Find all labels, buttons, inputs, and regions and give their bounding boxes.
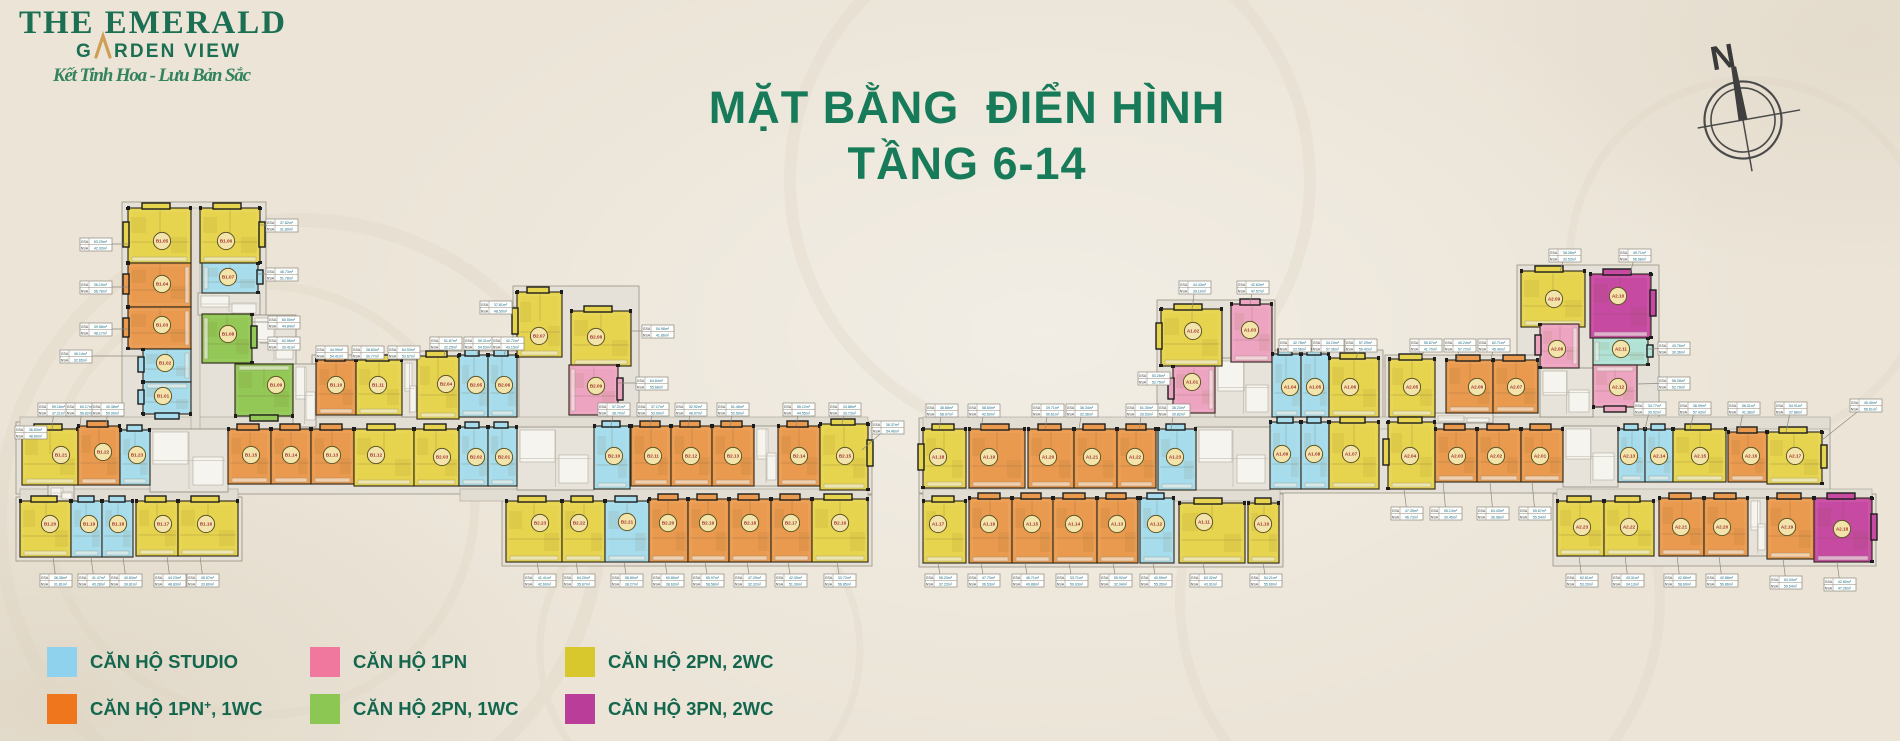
svg-text:NSA: NSA [81, 331, 89, 335]
svg-text:48.60m²: 48.60m² [29, 434, 43, 438]
svg-text:42.39m²: 42.39m² [789, 576, 803, 580]
svg-text:NSA: NSA [830, 411, 838, 415]
svg-text:NSA: NSA [1613, 582, 1621, 586]
svg-text:NSA: NSA [1825, 586, 1833, 590]
svg-text:A2.16: A2.16 [1745, 454, 1758, 459]
svg-text:37.82m²: 37.82m² [280, 221, 294, 225]
svg-text:GSA: GSA [637, 379, 645, 383]
svg-text:A2.04: A2.04 [1404, 454, 1417, 459]
svg-text:GSA: GSA [830, 405, 838, 409]
svg-text:55.35m²: 55.35m² [1154, 582, 1168, 586]
svg-text:A1.12: A1.12 [1150, 522, 1163, 527]
svg-text:GSA: GSA [1013, 576, 1021, 580]
svg-text:56.20m²: 56.20m² [939, 576, 953, 580]
svg-text:RDEN VIEW: RDEN VIEW [114, 41, 239, 62]
svg-text:THE EMERALD: THE EMERALD [19, 5, 285, 41]
svg-text:GSA: GSA [1776, 404, 1784, 408]
svg-text:B1.16: B1.16 [200, 522, 213, 527]
svg-text:37.17m²: 37.17m² [651, 405, 665, 409]
svg-text:B1.17: B1.17 [157, 522, 170, 527]
svg-text:GSA: GSA [1392, 509, 1400, 513]
svg-text:NSA: NSA [81, 289, 89, 293]
svg-text:50.42m²: 50.42m² [1359, 347, 1373, 351]
svg-text:55.12m²: 55.12m² [797, 405, 811, 409]
svg-text:61.46m²: 61.46m² [731, 405, 745, 409]
svg-text:44.84m²: 44.84m² [282, 324, 296, 328]
svg-text:B1.05: B1.05 [156, 239, 169, 244]
svg-text:A1.05: A1.05 [1309, 385, 1322, 390]
svg-text:GSA: GSA [1346, 341, 1354, 345]
svg-text:59.31m²: 59.31m² [478, 339, 492, 343]
svg-text:B1.08: B1.08 [222, 332, 235, 337]
svg-text:34.19m²: 34.19m² [1326, 341, 1340, 345]
svg-text:57.36m²: 57.36m² [1326, 347, 1340, 351]
svg-text:51.78m²: 51.78m² [280, 276, 294, 280]
svg-text:39.41m²: 39.41m² [282, 345, 296, 349]
svg-text:GSA: GSA [317, 348, 325, 352]
svg-text:41.86m²: 41.86m² [656, 333, 670, 337]
svg-text:59.93m²: 59.93m² [1070, 582, 1084, 586]
svg-text:GSA: GSA [1313, 341, 1321, 345]
svg-text:GSA: GSA [1033, 406, 1041, 410]
svg-text:44.23m²: 44.23m² [168, 576, 182, 580]
svg-text:A1.20: A1.20 [1042, 455, 1055, 460]
svg-text:GSA: GSA [643, 327, 651, 331]
svg-text:GSA: GSA [1238, 283, 1246, 287]
svg-text:A2.21: A2.21 [1675, 525, 1688, 530]
svg-text:42.63m²: 42.63m² [1251, 283, 1265, 287]
svg-text:B1.15: B1.15 [245, 453, 258, 458]
svg-text:47.26m²: 47.26m² [1838, 586, 1852, 590]
svg-text:NSA: NSA [493, 345, 501, 349]
svg-text:63.32m²: 63.32m² [1204, 576, 1218, 580]
svg-text:NSA: NSA [431, 345, 439, 349]
svg-text:43.88m²: 43.88m² [843, 405, 857, 409]
svg-text:NSA: NSA [67, 411, 75, 415]
svg-text:38.99m²: 38.99m² [1693, 404, 1707, 408]
svg-text:48.17m²: 48.17m² [94, 331, 108, 335]
svg-text:A2.10: A2.10 [1612, 294, 1625, 299]
svg-text:NSA: NSA [825, 582, 833, 586]
svg-text:NSA: NSA [1159, 412, 1167, 416]
svg-text:NSA: NSA [353, 354, 361, 358]
svg-text:31.89m²: 31.89m² [280, 227, 294, 231]
svg-text:54.53m²: 54.53m² [478, 345, 492, 349]
svg-text:GSA: GSA [525, 576, 533, 580]
svg-text:GSA: GSA [612, 576, 620, 580]
svg-text:B1.23: B1.23 [131, 453, 144, 458]
svg-text:NSA: NSA [1101, 582, 1109, 586]
svg-text:NSA: NSA [39, 411, 47, 415]
svg-text:A2.05: A2.05 [1406, 385, 1419, 390]
svg-text:53.29m²: 53.29m² [94, 240, 108, 244]
svg-text:57.72m²: 57.72m² [1458, 347, 1472, 351]
svg-text:34.77m²: 34.77m² [1648, 404, 1662, 408]
svg-text:NSA: NSA [969, 582, 977, 586]
svg-text:A2.15: A2.15 [1694, 454, 1707, 459]
svg-text:NSA: NSA [926, 582, 934, 586]
svg-text:62.71m²: 62.71m² [1492, 341, 1506, 345]
svg-text:NSA: NSA [1013, 582, 1021, 586]
svg-text:GSA: GSA [927, 406, 935, 410]
svg-text:55.68m²: 55.68m² [650, 385, 664, 389]
svg-text:34.13m²: 34.13m² [1626, 582, 1640, 586]
svg-text:NSA: NSA [873, 429, 881, 433]
svg-text:42.80m²: 42.80m² [1838, 580, 1852, 584]
svg-text:49.71m²: 49.71m² [1633, 251, 1647, 255]
svg-text:A2.13: A2.13 [1623, 454, 1636, 459]
svg-text:42.72m²: 42.72m² [506, 339, 520, 343]
svg-text:GSA: GSA [493, 339, 501, 343]
svg-text:NSA: NSA [1567, 582, 1575, 586]
svg-text:33.80m²: 33.80m² [201, 582, 215, 586]
svg-text:NSA: NSA [599, 411, 607, 415]
svg-text:A1.04: A1.04 [1284, 385, 1297, 390]
svg-text:NSA: NSA [1238, 289, 1246, 293]
svg-text:58.69m²: 58.69m² [1678, 582, 1692, 586]
svg-text:39.71m²: 39.71m² [1046, 406, 1060, 410]
svg-text:39.10m²: 39.10m² [1193, 289, 1207, 293]
svg-text:NSA: NSA [41, 582, 49, 586]
svg-text:NSA: NSA [1478, 515, 1486, 519]
svg-text:41.38m²: 41.38m² [1742, 410, 1756, 414]
svg-text:NSA: NSA [1392, 515, 1400, 519]
svg-text:NSA: NSA [1520, 515, 1528, 519]
svg-text:B2.01: B2.01 [498, 455, 511, 460]
svg-text:44.43m²: 44.43m² [1193, 283, 1207, 287]
svg-text:NSA: NSA [525, 582, 533, 586]
svg-text:NSA: NSA [969, 412, 977, 416]
svg-text:52.92m²: 52.92m² [689, 405, 703, 409]
svg-text:44.99m²: 44.99m² [330, 348, 344, 352]
svg-text:A2.22: A2.22 [1623, 525, 1636, 530]
svg-text:49.88m²: 49.88m² [1026, 582, 1040, 586]
svg-text:36.37m²: 36.37m² [886, 423, 900, 427]
svg-text:GSA: GSA [353, 348, 361, 352]
svg-text:GSA: GSA [1251, 576, 1259, 580]
svg-text:A1.09: A1.09 [1276, 452, 1289, 457]
svg-text:B2.19: B2.19 [702, 521, 715, 526]
svg-text:GSA: GSA [16, 428, 24, 432]
svg-text:A1.11: A1.11 [1198, 520, 1210, 525]
svg-text:B1.11: B1.11 [372, 383, 384, 388]
svg-text:GSA: GSA [784, 405, 792, 409]
svg-text:42.88m²: 42.88m² [1720, 576, 1734, 580]
svg-text:GSA: GSA [188, 576, 196, 580]
svg-text:48.50m²: 48.50m² [494, 309, 508, 313]
svg-text:A2.07: A2.07 [1510, 385, 1523, 390]
svg-text:GSA: GSA [1479, 341, 1487, 345]
svg-text:GSA: GSA [693, 576, 701, 580]
svg-text:53.20m²: 53.20m² [1580, 582, 1594, 586]
svg-text:GSA: GSA [79, 576, 87, 580]
svg-text:B1.19: B1.19 [83, 522, 96, 527]
svg-text:B1.14: B1.14 [285, 453, 298, 458]
svg-text:GSA: GSA [969, 576, 977, 580]
svg-text:GSA: GSA [267, 270, 275, 274]
svg-text:37.21m²: 37.21m² [52, 411, 66, 415]
svg-text:B1.21: B1.21 [55, 453, 68, 458]
svg-text:59.54m²: 59.54m² [1784, 584, 1798, 588]
svg-text:NSA: NSA [735, 582, 743, 586]
svg-text:59.18m²: 59.18m² [52, 405, 66, 409]
svg-text:43.76m²: 43.76m² [1672, 344, 1686, 348]
svg-text:NSA: NSA [1659, 350, 1667, 354]
svg-text:NSA: NSA [93, 411, 101, 415]
svg-text:36.98m²: 36.98m² [1491, 515, 1505, 519]
svg-text:GSA: GSA [1067, 406, 1075, 410]
svg-text:NSA: NSA [389, 354, 397, 358]
svg-text:56.78m²: 56.78m² [94, 289, 108, 293]
svg-text:58.97m²: 58.97m² [940, 412, 954, 416]
svg-text:53.26m²: 53.26m² [1152, 374, 1166, 378]
svg-text:64.53m²: 64.53m² [402, 348, 416, 352]
svg-text:GSA: GSA [1139, 374, 1147, 378]
svg-text:NSA: NSA [481, 309, 489, 313]
svg-text:GSA: GSA [269, 318, 277, 322]
svg-text:36.23m²: 36.23m² [1172, 406, 1186, 410]
svg-text:B1.03: B1.03 [156, 323, 169, 328]
svg-text:37.81m²: 37.81m² [494, 303, 508, 307]
svg-text:GSA: GSA [1101, 576, 1109, 580]
svg-text:A1.19: A1.19 [983, 455, 996, 460]
svg-text:A2.11: A2.11 [1615, 347, 1627, 352]
svg-text:GSA: GSA [1180, 283, 1188, 287]
svg-text:32.32m²: 32.32m² [748, 582, 762, 586]
svg-text:43.28m²: 43.28m² [92, 582, 106, 586]
svg-text:47.57m²: 47.57m² [1251, 289, 1265, 293]
svg-text:NSA: NSA [1620, 257, 1628, 261]
svg-text:GSA: GSA [111, 576, 119, 580]
svg-text:B2.07: B2.07 [533, 334, 546, 339]
svg-text:36.53m²: 36.53m² [982, 582, 996, 586]
svg-text:56.85m²: 56.85m² [838, 582, 852, 586]
svg-text:36.68m²: 36.68m² [940, 406, 954, 410]
svg-text:51.87m²: 51.87m² [444, 339, 458, 343]
svg-text:61.30m²: 61.30m² [1140, 406, 1154, 410]
svg-text:33.73m²: 33.73m² [843, 411, 857, 415]
svg-text:B2.21: B2.21 [621, 520, 634, 525]
svg-text:B2.18: B2.18 [744, 521, 757, 526]
svg-text:40.38m²: 40.38m² [106, 405, 120, 409]
svg-text:A2.12: A2.12 [1612, 385, 1625, 390]
svg-text:GSA: GSA [61, 352, 69, 356]
svg-text:GSA: GSA [1771, 578, 1779, 582]
svg-text:NSA: NSA [1776, 410, 1784, 414]
svg-text:B2.14: B2.14 [793, 454, 806, 459]
svg-text:38.63m²: 38.63m² [666, 582, 680, 586]
svg-text:40.59m²: 40.59m² [1154, 576, 1168, 580]
svg-text:62.56m²: 62.56m² [282, 339, 296, 343]
svg-text:GSA: GSA [1141, 576, 1149, 580]
svg-text:GSA: GSA [1825, 580, 1833, 584]
svg-text:42.60m²: 42.60m² [982, 412, 996, 416]
svg-text:B2.13: B2.13 [727, 454, 740, 459]
svg-text:NSA: NSA [1431, 515, 1439, 519]
svg-text:37.23m²: 37.23m² [939, 582, 953, 586]
svg-text:NSA: NSA [1180, 289, 1188, 293]
svg-text:GSA: GSA [776, 576, 784, 580]
svg-text:A2.20: A2.20 [1716, 525, 1729, 530]
svg-text:40.24m²: 40.24m² [1458, 341, 1472, 345]
svg-text:NSA: NSA [1659, 385, 1667, 389]
svg-text:B2.05: B2.05 [470, 383, 483, 388]
svg-text:63.94m²: 63.94m² [1784, 578, 1798, 582]
svg-text:B1.18: B1.18 [112, 522, 125, 527]
svg-text:NSA: NSA [1141, 582, 1149, 586]
svg-text:NSA: NSA [1707, 582, 1715, 586]
svg-text:NSA: NSA [61, 358, 69, 362]
svg-text:NSA: NSA [1729, 410, 1737, 414]
svg-text:A1.01: A1.01 [1186, 380, 1199, 385]
svg-text:NSA: NSA [188, 582, 196, 586]
svg-text:NSA: NSA [1139, 380, 1147, 384]
svg-text:GSA: GSA [41, 576, 49, 580]
svg-text:32.36m²: 32.36m² [1080, 412, 1094, 416]
svg-text:47.70m²: 47.70m² [982, 576, 996, 580]
svg-text:55.54m²: 55.54m² [1533, 515, 1547, 519]
svg-text:GSA: GSA [825, 576, 833, 580]
svg-text:36.34m²: 36.34m² [1080, 406, 1094, 410]
svg-text:45.49m²: 45.49m² [1492, 347, 1506, 351]
svg-text:36.38m²: 36.38m² [54, 576, 68, 580]
svg-text:B2.15: B2.15 [839, 454, 852, 459]
svg-text:GSA: GSA [1635, 404, 1643, 408]
svg-text:64.84m²: 64.84m² [650, 379, 664, 383]
svg-text:B2.10: B2.10 [608, 454, 621, 459]
svg-text:B1.09: B1.09 [270, 383, 283, 388]
svg-text:A2.06: A2.06 [1471, 385, 1484, 390]
svg-text:B2.12: B2.12 [685, 454, 698, 459]
svg-text:55.60m²: 55.60m² [1264, 582, 1278, 586]
svg-text:GSA: GSA [267, 221, 275, 225]
svg-text:B2.16: B2.16 [834, 521, 847, 526]
svg-text:51.39m²: 51.39m² [789, 582, 803, 586]
svg-text:41.41m²: 41.41m² [538, 576, 552, 580]
svg-text:32.65m²: 32.65m² [74, 358, 88, 362]
svg-text:B1.13: B1.13 [326, 453, 339, 458]
svg-text:GSA: GSA [1659, 344, 1667, 348]
svg-text:NSA: NSA [784, 411, 792, 415]
svg-text:A2.18: A2.18 [1836, 527, 1849, 532]
svg-text:GSA: GSA [564, 576, 572, 580]
svg-text:B2.06: B2.06 [498, 383, 511, 388]
svg-text:NSA: NSA [1191, 582, 1199, 586]
svg-text:NSA: NSA [676, 411, 684, 415]
svg-text:47.29m²: 47.29m² [748, 576, 762, 580]
svg-text:30.82m²: 30.82m² [1172, 412, 1186, 416]
svg-text:44.55m²: 44.55m² [797, 411, 811, 415]
svg-text:B1.04: B1.04 [156, 282, 169, 287]
svg-text:B1.01: B1.01 [157, 394, 170, 399]
svg-text:GSA: GSA [93, 405, 101, 409]
svg-text:42.93m²: 42.93m² [94, 246, 108, 250]
svg-text:GSA: GSA [653, 576, 661, 580]
svg-text:55.67m²: 55.67m² [1533, 509, 1547, 513]
svg-text:NSA: NSA [693, 582, 701, 586]
svg-text:32.94m²: 32.94m² [1114, 582, 1128, 586]
svg-text:NSA: NSA [269, 345, 277, 349]
svg-text:A1.17: A1.17 [932, 522, 945, 527]
svg-text:GSA: GSA [1411, 341, 1419, 345]
svg-text:55.87m²: 55.87m² [1424, 341, 1438, 345]
svg-text:55.97m²: 55.97m² [706, 576, 720, 580]
svg-text:54.98m²: 54.98m² [656, 327, 670, 331]
svg-text:GSA: GSA [1567, 576, 1575, 580]
svg-text:A1.14: A1.14 [1068, 522, 1081, 527]
svg-text:GSA: GSA [481, 303, 489, 307]
svg-text:38.83m²: 38.83m² [366, 348, 380, 352]
svg-text:GSA: GSA [969, 406, 977, 410]
svg-text:46.14m²: 46.14m² [74, 352, 88, 356]
svg-text:Kết Tinh Hoa - Lưu Bản Sắc: Kết Tinh Hoa - Lưu Bản Sắc [52, 65, 252, 86]
svg-text:55.92m²: 55.92m² [1114, 576, 1128, 580]
svg-text:NSA: NSA [1067, 412, 1075, 416]
svg-text:NSA: NSA [155, 582, 163, 586]
svg-text:GSA: GSA [1057, 576, 1065, 580]
svg-text:46.73m²: 46.73m² [280, 270, 294, 274]
svg-text:GSA: GSA [1478, 509, 1486, 513]
svg-text:57.29m²: 57.29m² [1359, 341, 1373, 345]
svg-text:52.75m²: 52.75m² [1152, 380, 1166, 384]
svg-text:NSA: NSA [79, 582, 87, 586]
svg-text:GSA: GSA [1191, 576, 1199, 580]
svg-text:A2.17: A2.17 [1789, 454, 1802, 459]
svg-text:A1.07: A1.07 [1345, 452, 1358, 457]
svg-text:37.21m²: 37.21m² [612, 405, 626, 409]
svg-text:33.53m²: 33.53m² [1563, 257, 1577, 261]
svg-text:50.90m²: 50.90m² [106, 411, 120, 415]
svg-text:GSA: GSA [926, 576, 934, 580]
svg-text:B2.11: B2.11 [647, 454, 659, 459]
svg-text:NSA: NSA [317, 354, 325, 358]
svg-text:NSA: NSA [267, 227, 275, 231]
svg-text:58.60m²: 58.60m² [982, 406, 996, 410]
svg-text:56.86m²: 56.86m² [1720, 582, 1734, 586]
svg-text:GSA: GSA [599, 405, 607, 409]
svg-text:GSA: GSA [1127, 406, 1135, 410]
svg-text:NSA: NSA [465, 345, 473, 349]
svg-text:A2.03: A2.03 [1451, 454, 1464, 459]
svg-text:GSA: GSA [269, 339, 277, 343]
svg-text:40.83m²: 40.83m² [124, 576, 138, 580]
svg-text:GSA: GSA [1550, 251, 1558, 255]
svg-text:36.19m²: 36.19m² [94, 283, 108, 287]
svg-text:GSA: GSA [431, 339, 439, 343]
svg-text:43.31m²: 43.31m² [1626, 576, 1640, 580]
svg-text:GSA: GSA [1680, 404, 1688, 408]
svg-text:B1.06: B1.06 [220, 239, 233, 244]
svg-text:NSA: NSA [612, 582, 620, 586]
svg-text:B1.22: B1.22 [97, 450, 110, 455]
svg-text:GSA: GSA [81, 283, 89, 287]
svg-text:NSA: NSA [637, 385, 645, 389]
svg-text:60.50m²: 60.50m² [282, 318, 296, 322]
svg-text:B1.20: B1.20 [44, 522, 57, 527]
svg-text:57.43m²: 57.43m² [1693, 410, 1707, 414]
svg-text:GSA: GSA [1280, 341, 1288, 345]
svg-text:52.79m²: 52.79m² [1672, 385, 1686, 389]
svg-text:35.67m²: 35.67m² [577, 582, 591, 586]
svg-text:A1.13: A1.13 [1111, 522, 1124, 527]
svg-text:43.15m²: 43.15m² [506, 345, 520, 349]
svg-text:B2.20: B2.20 [662, 521, 675, 526]
svg-text:39.81m²: 39.81m² [124, 582, 138, 586]
svg-text:GSA: GSA [1729, 404, 1737, 408]
svg-text:NSA: NSA [1280, 347, 1288, 351]
svg-text:GSA: GSA [67, 405, 75, 409]
svg-text:A1.16: A1.16 [983, 522, 996, 527]
